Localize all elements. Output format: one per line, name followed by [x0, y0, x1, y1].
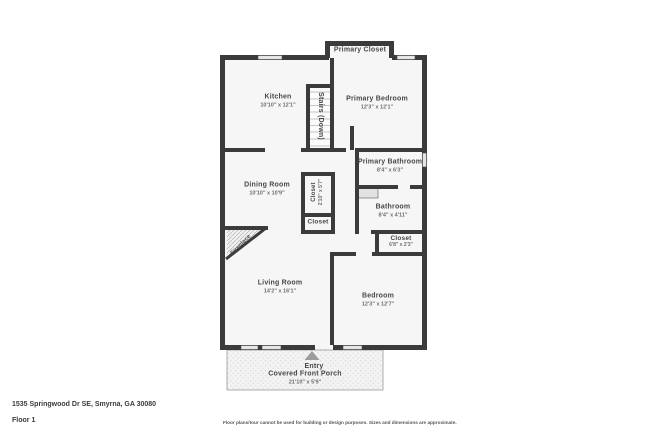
room-name: Closet	[389, 235, 413, 242]
room-name: Kitchen	[260, 93, 295, 101]
floorplan-canvas	[0, 0, 650, 434]
room-label-living-room: Living Room 14'2" x 16'1"	[258, 279, 303, 294]
room-label-primary-closet: Primary Closet	[334, 46, 386, 55]
room-label-bedroom: Bedroom 12'3" x 12'7"	[362, 292, 394, 307]
room-dims: 8'4" x 6'3"	[358, 167, 422, 173]
room-name: Stairs (Down)	[316, 92, 324, 140]
room-label-closet-vertical: Closet 2'10" x 5'7"	[311, 179, 325, 206]
room-dims: 10'10" x 12'1"	[260, 102, 295, 108]
room-name: Bedroom	[362, 292, 394, 300]
room-dims: 14'2" x 16'1"	[258, 288, 303, 294]
room-name: Closet	[311, 179, 318, 206]
disclaimer-text: Floor plans/tour cannot be used for buil…	[223, 420, 457, 425]
room-label-bathroom: Bathroom 8'4" x 4'11"	[376, 203, 411, 218]
room-label-porch: Covered Front Porch 21'10" x 5'9"	[268, 370, 341, 385]
room-dims: 6'8" x 2'3"	[389, 243, 413, 249]
floorplan-page: Primary Closet Kitchen 10'10" x 12'1" St…	[0, 0, 650, 434]
room-label-stairs: Stairs (Down)	[316, 92, 324, 140]
room-label-closet-small: Closet	[307, 218, 328, 225]
room-dims: 2'10" x 5'7"	[319, 179, 325, 206]
room-label-closet-hall: Closet 6'8" x 2'3"	[389, 235, 413, 249]
floor-label: Floor 1	[12, 417, 35, 424]
room-dims: 8'4" x 4'11"	[376, 212, 411, 218]
bath-fixture	[358, 188, 378, 198]
room-label-primary-bathroom: Primary Bathroom 8'4" x 6'3"	[358, 158, 422, 173]
room-name: Covered Front Porch	[268, 370, 341, 378]
room-name: Dining Room	[244, 181, 290, 189]
room-dims: 21'10" x 5'9"	[268, 379, 341, 385]
room-name: Primary Bathroom	[358, 158, 422, 166]
room-label-kitchen: Kitchen 10'10" x 12'1"	[260, 93, 295, 108]
room-dims: 12'3" x 12'7"	[362, 301, 394, 307]
room-name: Primary Closet	[334, 46, 386, 54]
room-name: Closet	[307, 218, 328, 225]
room-name: Living Room	[258, 279, 303, 287]
room-name: Primary Bedroom	[346, 95, 408, 103]
room-dims: 12'3" x 12'1"	[346, 104, 408, 110]
room-dims: 10'10" x 10'9"	[244, 190, 290, 196]
room-name: Bathroom	[376, 203, 411, 211]
address-text: 1535 Springwood Dr SE, Smyrna, GA 30080	[12, 401, 156, 408]
room-label-dining-room: Dining Room 10'10" x 10'9"	[244, 181, 290, 196]
room-label-primary-bedroom: Primary Bedroom 12'3" x 12'1"	[346, 95, 408, 110]
